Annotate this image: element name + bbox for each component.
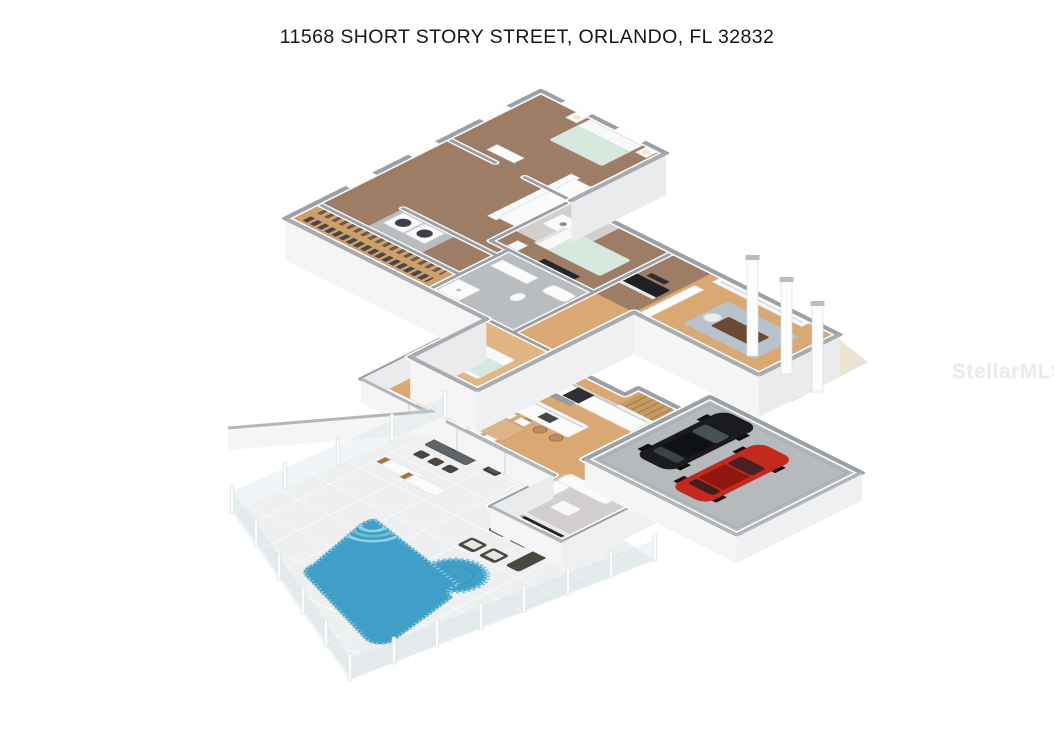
pillar [781,280,792,374]
floor-plan-page: 11568 SHORT STORY STREET, ORLANDO, FL 32… [0,0,1054,745]
pillar [747,258,758,356]
stellar-mls-watermark: StellarMLS [952,360,1054,384]
pillar [812,304,823,392]
floor-plan-image [0,0,1054,745]
